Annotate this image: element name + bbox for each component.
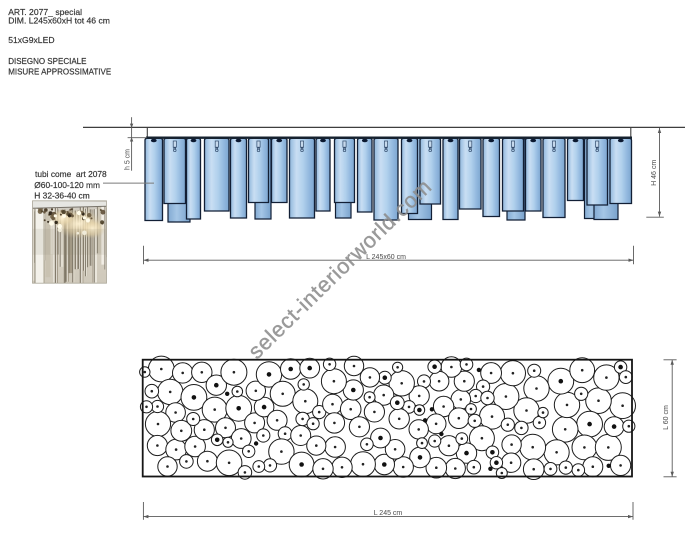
svg-text:h 5 cm: h 5 cm — [125, 149, 132, 170]
svg-text:L 245 cm: L 245 cm — [374, 510, 403, 517]
svg-text:DISEGNO SPECIALE: DISEGNO SPECIALE — [8, 57, 86, 66]
svg-text:DIM. L245x60xH tot 46 cm: DIM. L245x60xH tot 46 cm — [8, 16, 110, 26]
svg-text:L 245x60 cm: L 245x60 cm — [366, 254, 406, 261]
svg-text:51xG9xLED: 51xG9xLED — [8, 35, 54, 45]
svg-text:H 46 cm: H 46 cm — [651, 160, 658, 186]
svg-text:Ø60-100-120 mm: Ø60-100-120 mm — [34, 180, 100, 190]
svg-text:H 32-36-40 cm: H 32-36-40 cm — [34, 191, 89, 201]
svg-text:tubi come art 2078: tubi come art 2078 — [35, 169, 107, 179]
svg-text:MISURE APPROSSIMATIVE: MISURE APPROSSIMATIVE — [8, 67, 111, 76]
svg-text:L 60 cm: L 60 cm — [663, 405, 670, 430]
